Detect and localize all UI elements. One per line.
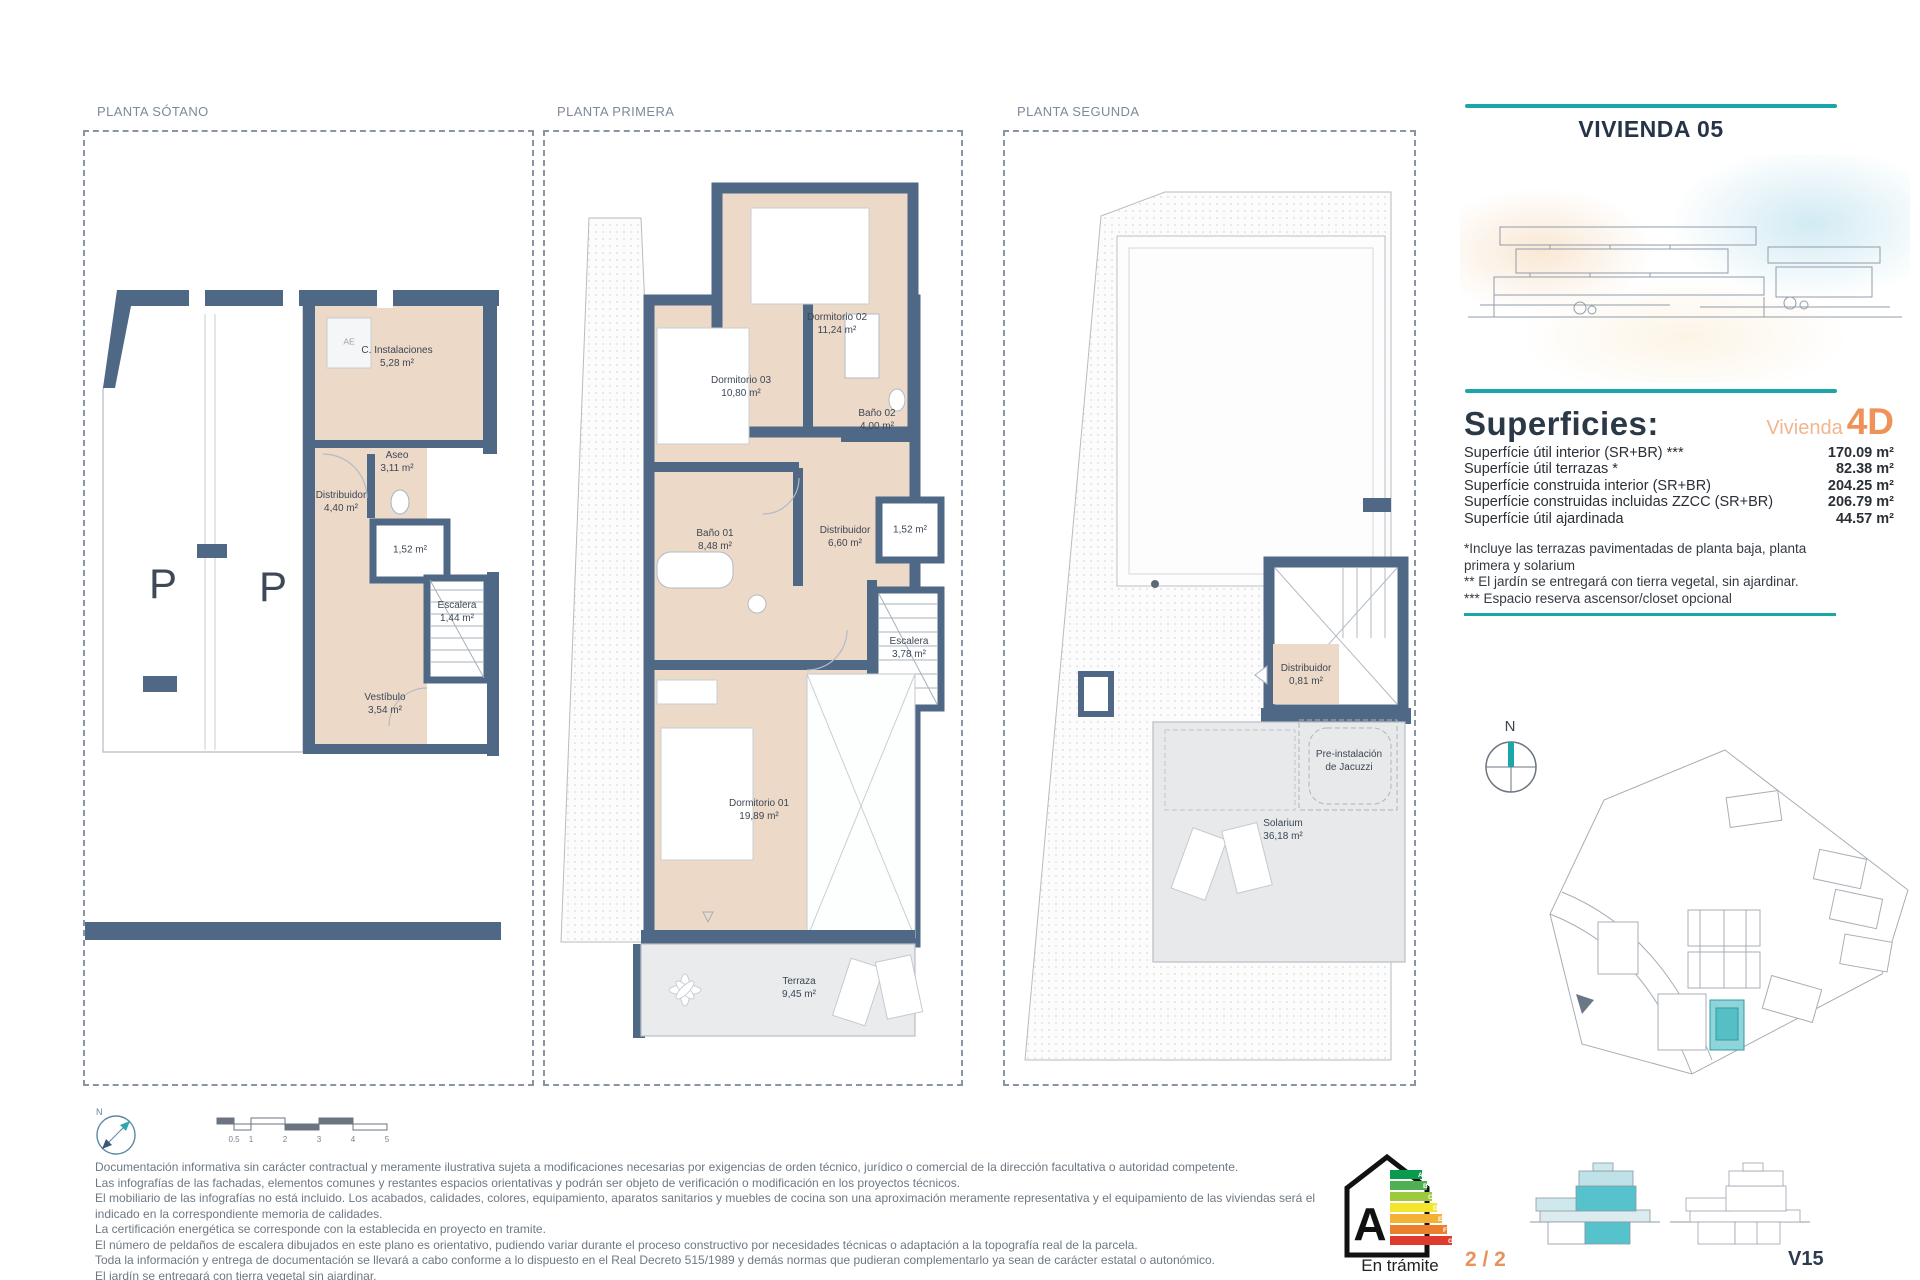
parking-stall-letter: P [259,563,287,611]
superficies-row: Superfície útil interior (SR+BR) *** 170… [1464,445,1894,461]
room-label: Vestíbulo 3,54 m² [364,691,405,717]
plan-sheet: PLANTA SÓTANO [0,0,1920,1280]
superficies-heading: Superficies: Vivienda4D [1464,401,1894,443]
superficies-row: Superfície construidas incluidas ZZCC (S… [1464,494,1894,510]
jacuzzi-label: Pre-instalación de Jacuzzi [1316,748,1382,774]
room-label: Escalera 3,78 m² [890,635,929,661]
scale-tick: 4 [351,1135,356,1144]
room-label: Terraza 9,45 m² [782,975,816,1001]
disclaimer-line: Documentación informativa sin carácter c… [95,1160,1350,1176]
sheet-number: 2 / 2 [1465,1248,1506,1272]
room-label: C. Instalaciones 5,28 m² [361,344,432,370]
info-sidebar: VIVIENDA 05 [1460,104,1915,616]
scale-tick: 2 [283,1135,288,1144]
superficies-row: Superfície construida interior (SR+BR) 2… [1464,478,1894,494]
energy-bar-letter: E [1438,1216,1443,1223]
plan-primera-svg [545,132,961,1084]
energy-bar-letter: G [1448,1238,1453,1245]
room-label: AE [343,336,354,347]
plan-segunda-drawing: Distribuidor 0,81 m² Pre-instalación de … [1003,130,1416,1086]
energy-bar-letter: D [1433,1205,1438,1212]
energy-bar-letter: F [1443,1227,1447,1234]
compass-north-label: N [96,1107,103,1117]
scale-tick: 0.5 [228,1135,240,1144]
plan-primera-title: PLANTA PRIMERA [543,104,963,130]
energy-bar-letter: C [1428,1194,1433,1201]
room-label: Solarium 36,18 m² [1263,817,1302,843]
disclaimer-line: Toda la información y entrega de documen… [95,1253,1350,1269]
note-line: ** El jardín se entregará con tierra veg… [1464,574,1894,591]
scale-compass-icon: N [88,1105,144,1161]
superficies-notes: *Incluye las terrazas pavimentadas de pl… [1464,541,1894,607]
sheet-code: V15 [1788,1248,1824,1271]
scale-tick: 1 [249,1135,254,1144]
disclaimer-line: El número de peldaños de escalera dibuja… [95,1238,1350,1254]
teal-rule-mid [1465,389,1837,393]
superficies-row: Superfície útil terrazas * 82.38 m² [1464,461,1894,477]
site-compass: N [1478,715,1548,805]
note-line: *** Espacio reserva ascensor/closet opci… [1464,591,1894,608]
note-line: primera y solarium [1464,558,1894,575]
room-label: Dormitorio 02 11,24 m² [807,311,867,337]
scale-tick: 3 [317,1135,322,1144]
plan-segunda: PLANTA SEGUNDA [1003,104,1416,1086]
plan-sotano: PLANTA SÓTANO [83,104,534,1086]
teal-rule-top [1465,104,1837,108]
energy-bar-letter: B [1423,1183,1428,1190]
energy-certificate-icon: A A B C D E F G [1340,1148,1460,1260]
plan-primera-drawing: Dormitorio 02 11,24 m² Dormitorio 03 10,… [543,130,963,1086]
room-label: Escalera 1,44 m² [438,599,477,625]
disclaimer-line: El mobiliario de las infografías no está… [95,1191,1350,1207]
plan-primera: PLANTA PRIMERA [543,104,963,1086]
superficies-row: Superfície útil ajardinada 44.57 m² [1464,511,1894,527]
legal-disclaimer: Documentación informativa sin carácter c… [95,1160,1350,1280]
page-title: VIVIENDA 05 [1460,116,1842,143]
energy-status: En trámite [1340,1256,1460,1276]
room-label: Distribuidor 0,81 m² [1281,662,1332,688]
room-label: 1,52 m² [393,544,427,557]
disclaimer-line: El jardín se entregará con tierra vegeta… [95,1269,1350,1280]
villa-rendering [1460,155,1910,383]
superficies-block: Superficies: Vivienda4D Superfície útil … [1460,389,1915,616]
room-label: Baño 01 8,48 m² [696,527,733,553]
disclaimer-line: indicado en la correspondiente memoria d… [95,1207,1350,1223]
note-line: *Incluye las terrazas pavimentadas de pl… [1464,541,1894,558]
vivienda-type: Vivienda4D [1766,401,1894,443]
disclaimer-line: La certificación energética se correspon… [95,1222,1350,1238]
room-label: 1,52 m² [893,524,927,537]
room-label: Baño 02 4,00 m² [858,407,895,433]
plan-segunda-title: PLANTA SEGUNDA [1003,104,1416,130]
building-sections [1530,1160,1810,1265]
energy-bar-letter: A [1418,1172,1423,1179]
plan-sotano-drawing: P P C. Instalaciones 5,28 m² AE Aseo 3,1… [83,130,534,1086]
plan-sotano-title: PLANTA SÓTANO [83,104,534,130]
room-label: Aseo 3,11 m² [380,449,413,475]
scale-tick: 5 [385,1135,390,1144]
villa-rendering-lines [1460,155,1910,383]
superficies-table: Superfície útil interior (SR+BR) *** 170… [1464,445,1894,527]
teal-rule-bottom [1464,613,1836,616]
site-plan [1540,742,1915,1090]
energy-letter: A [1353,1198,1386,1250]
room-label: Distribuidor 4,40 m² [316,489,367,515]
room-label: Dormitorio 03 10,80 m² [711,374,771,400]
room-label: Dormitorio 01 19,89 m² [729,797,789,823]
plan-segunda-svg [1005,132,1414,1084]
compass-north-label: N [1505,718,1516,735]
disclaimer-line: Las infografías de las fachadas, element… [95,1176,1350,1192]
parking-stall-letter: P [149,560,177,608]
scale-bar: 0.5 1 2 3 4 5 [215,1112,435,1146]
room-label: Distribuidor 6,60 m² [820,524,871,550]
superficies-title: Superficies: [1464,405,1659,443]
